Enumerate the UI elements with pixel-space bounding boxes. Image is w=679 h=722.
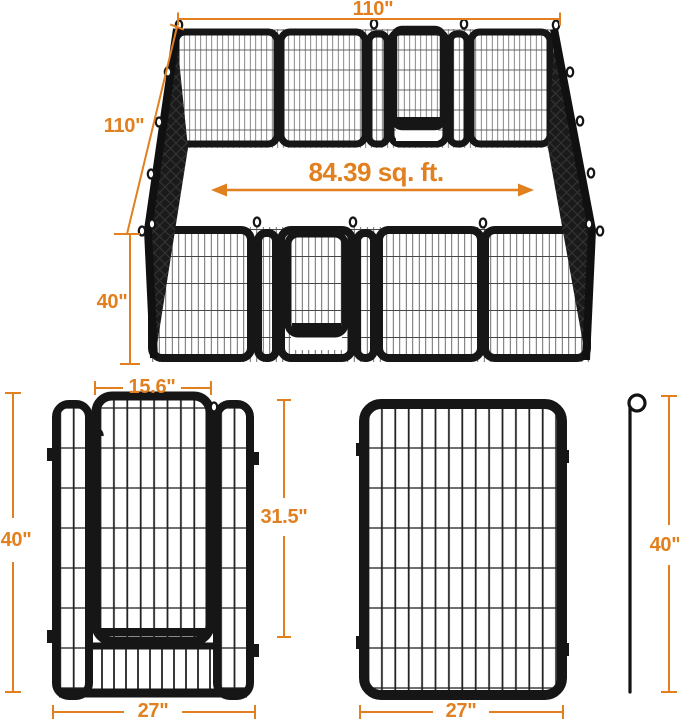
playpen-back-wall — [173, 29, 552, 148]
plain-panel-front-view — [356, 404, 569, 695]
area-label: 84.39 sq. ft. — [308, 159, 443, 185]
diagram-canvas — [0, 0, 679, 722]
dim-top-width-label: 110" — [353, 0, 394, 19]
dim-depth-label: 110" — [104, 116, 145, 136]
dim-door-height-label: 31.5" — [261, 507, 308, 527]
dim-door-panel-width-label: 27" — [138, 701, 169, 721]
dim-pen-height-label: 40" — [97, 292, 128, 312]
door-panel-front-view — [47, 396, 259, 696]
ground-stake-icon — [629, 395, 645, 692]
playpen-front-wall — [149, 227, 589, 362]
dim-door-width-label: 15.6" — [129, 377, 176, 397]
dim-stake-height-label: 40" — [650, 535, 679, 555]
dim-plain-panel-width-label: 27" — [446, 701, 477, 721]
playpen-3d-view — [114, 13, 603, 365]
product-dimension-diagram: 110" 110" 84.39 sq. ft. 40" 15.6" 31.5" … — [0, 0, 679, 722]
dim-panel-height-label: 40" — [1, 530, 32, 550]
